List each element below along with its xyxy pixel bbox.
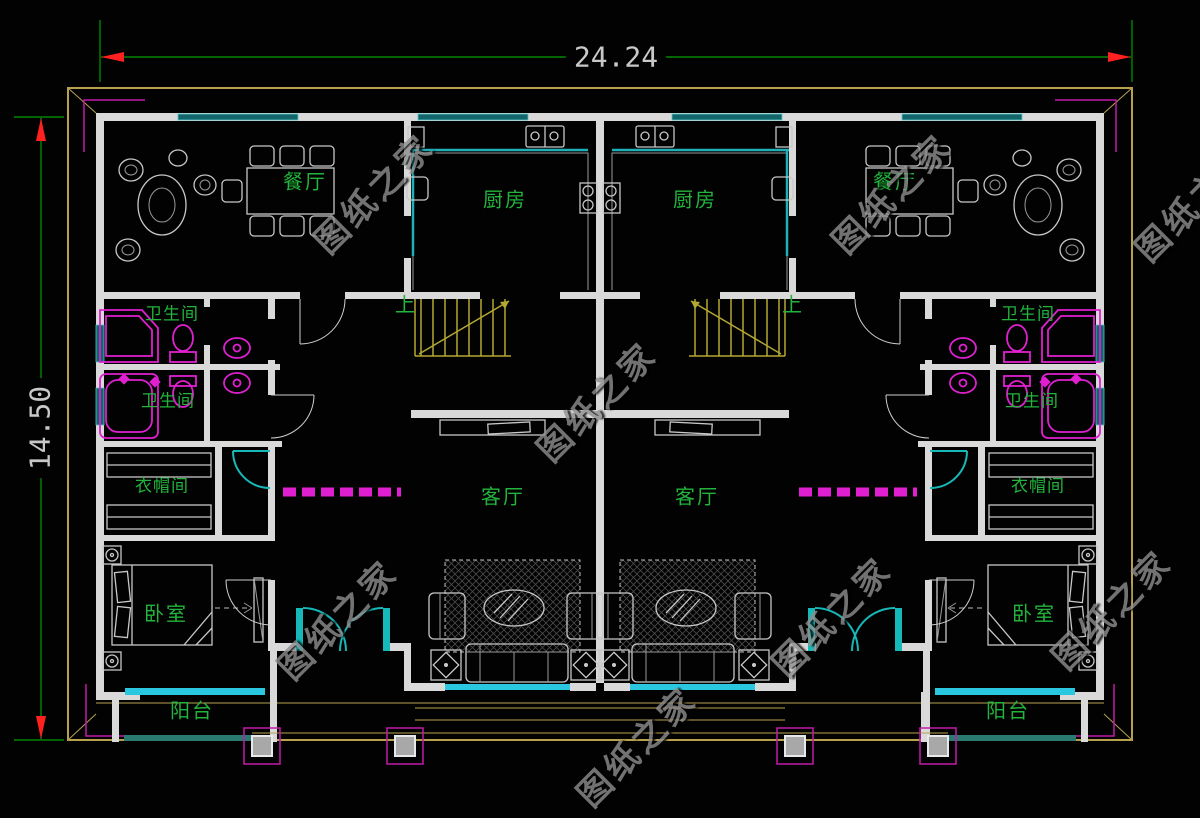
door-bath2-right	[886, 395, 929, 438]
dimension-height-label: 14.50	[24, 378, 57, 478]
room-label-kitchen-left: 厨房	[483, 184, 527, 213]
room-label-balcony-right: 阳台	[986, 695, 1030, 724]
porch-steps	[252, 708, 948, 733]
room-label-bath2-left: 卫生间	[141, 387, 195, 412]
door-bedroom-left	[226, 580, 271, 625]
stairs-right	[689, 299, 785, 356]
floor-plan-canvas: 24.24 14.50 餐厅 餐厅 厨房 厨房 卫生间 卫生间 卫生间 卫生间 …	[0, 0, 1200, 818]
bathroom-fixtures-left	[100, 310, 250, 438]
room-label-bath1-right: 卫生间	[1001, 300, 1055, 325]
room-label-bedroom-left: 卧室	[144, 598, 188, 627]
room-label-bedroom-right: 卧室	[1012, 598, 1056, 627]
stairs-up-label-right: 上	[782, 289, 804, 318]
door-bath2-left	[271, 395, 314, 438]
door-cloakroom-right	[930, 451, 967, 488]
bathroom-fixtures-right	[950, 310, 1100, 438]
room-label-balcony-left: 阳台	[170, 695, 214, 724]
door-bedroom-right	[929, 580, 974, 625]
plants-left	[116, 150, 216, 261]
living-room-right	[597, 420, 771, 682]
room-label-cloakroom-left: 衣帽间	[135, 472, 189, 497]
room-label-bath1-left: 卫生间	[145, 300, 199, 325]
room-label-living-left: 客厅	[481, 481, 525, 510]
room-label-bath2-right: 卫生间	[1005, 387, 1059, 412]
dimension-width-label: 24.24	[566, 41, 666, 74]
room-label-kitchen-right: 厨房	[673, 184, 717, 213]
stairs-left	[415, 299, 511, 356]
stairs-up-label-left: 上	[395, 289, 417, 318]
door-cloakroom-left	[233, 451, 270, 488]
room-label-cloakroom-right: 衣帽间	[1011, 472, 1065, 497]
room-label-living-right: 客厅	[675, 481, 719, 510]
door-bath-right	[855, 299, 900, 344]
door-bath-left	[300, 299, 345, 344]
plants-right	[984, 150, 1084, 261]
room-label-dining-left: 餐厅	[283, 166, 327, 195]
living-room-left	[429, 420, 603, 682]
